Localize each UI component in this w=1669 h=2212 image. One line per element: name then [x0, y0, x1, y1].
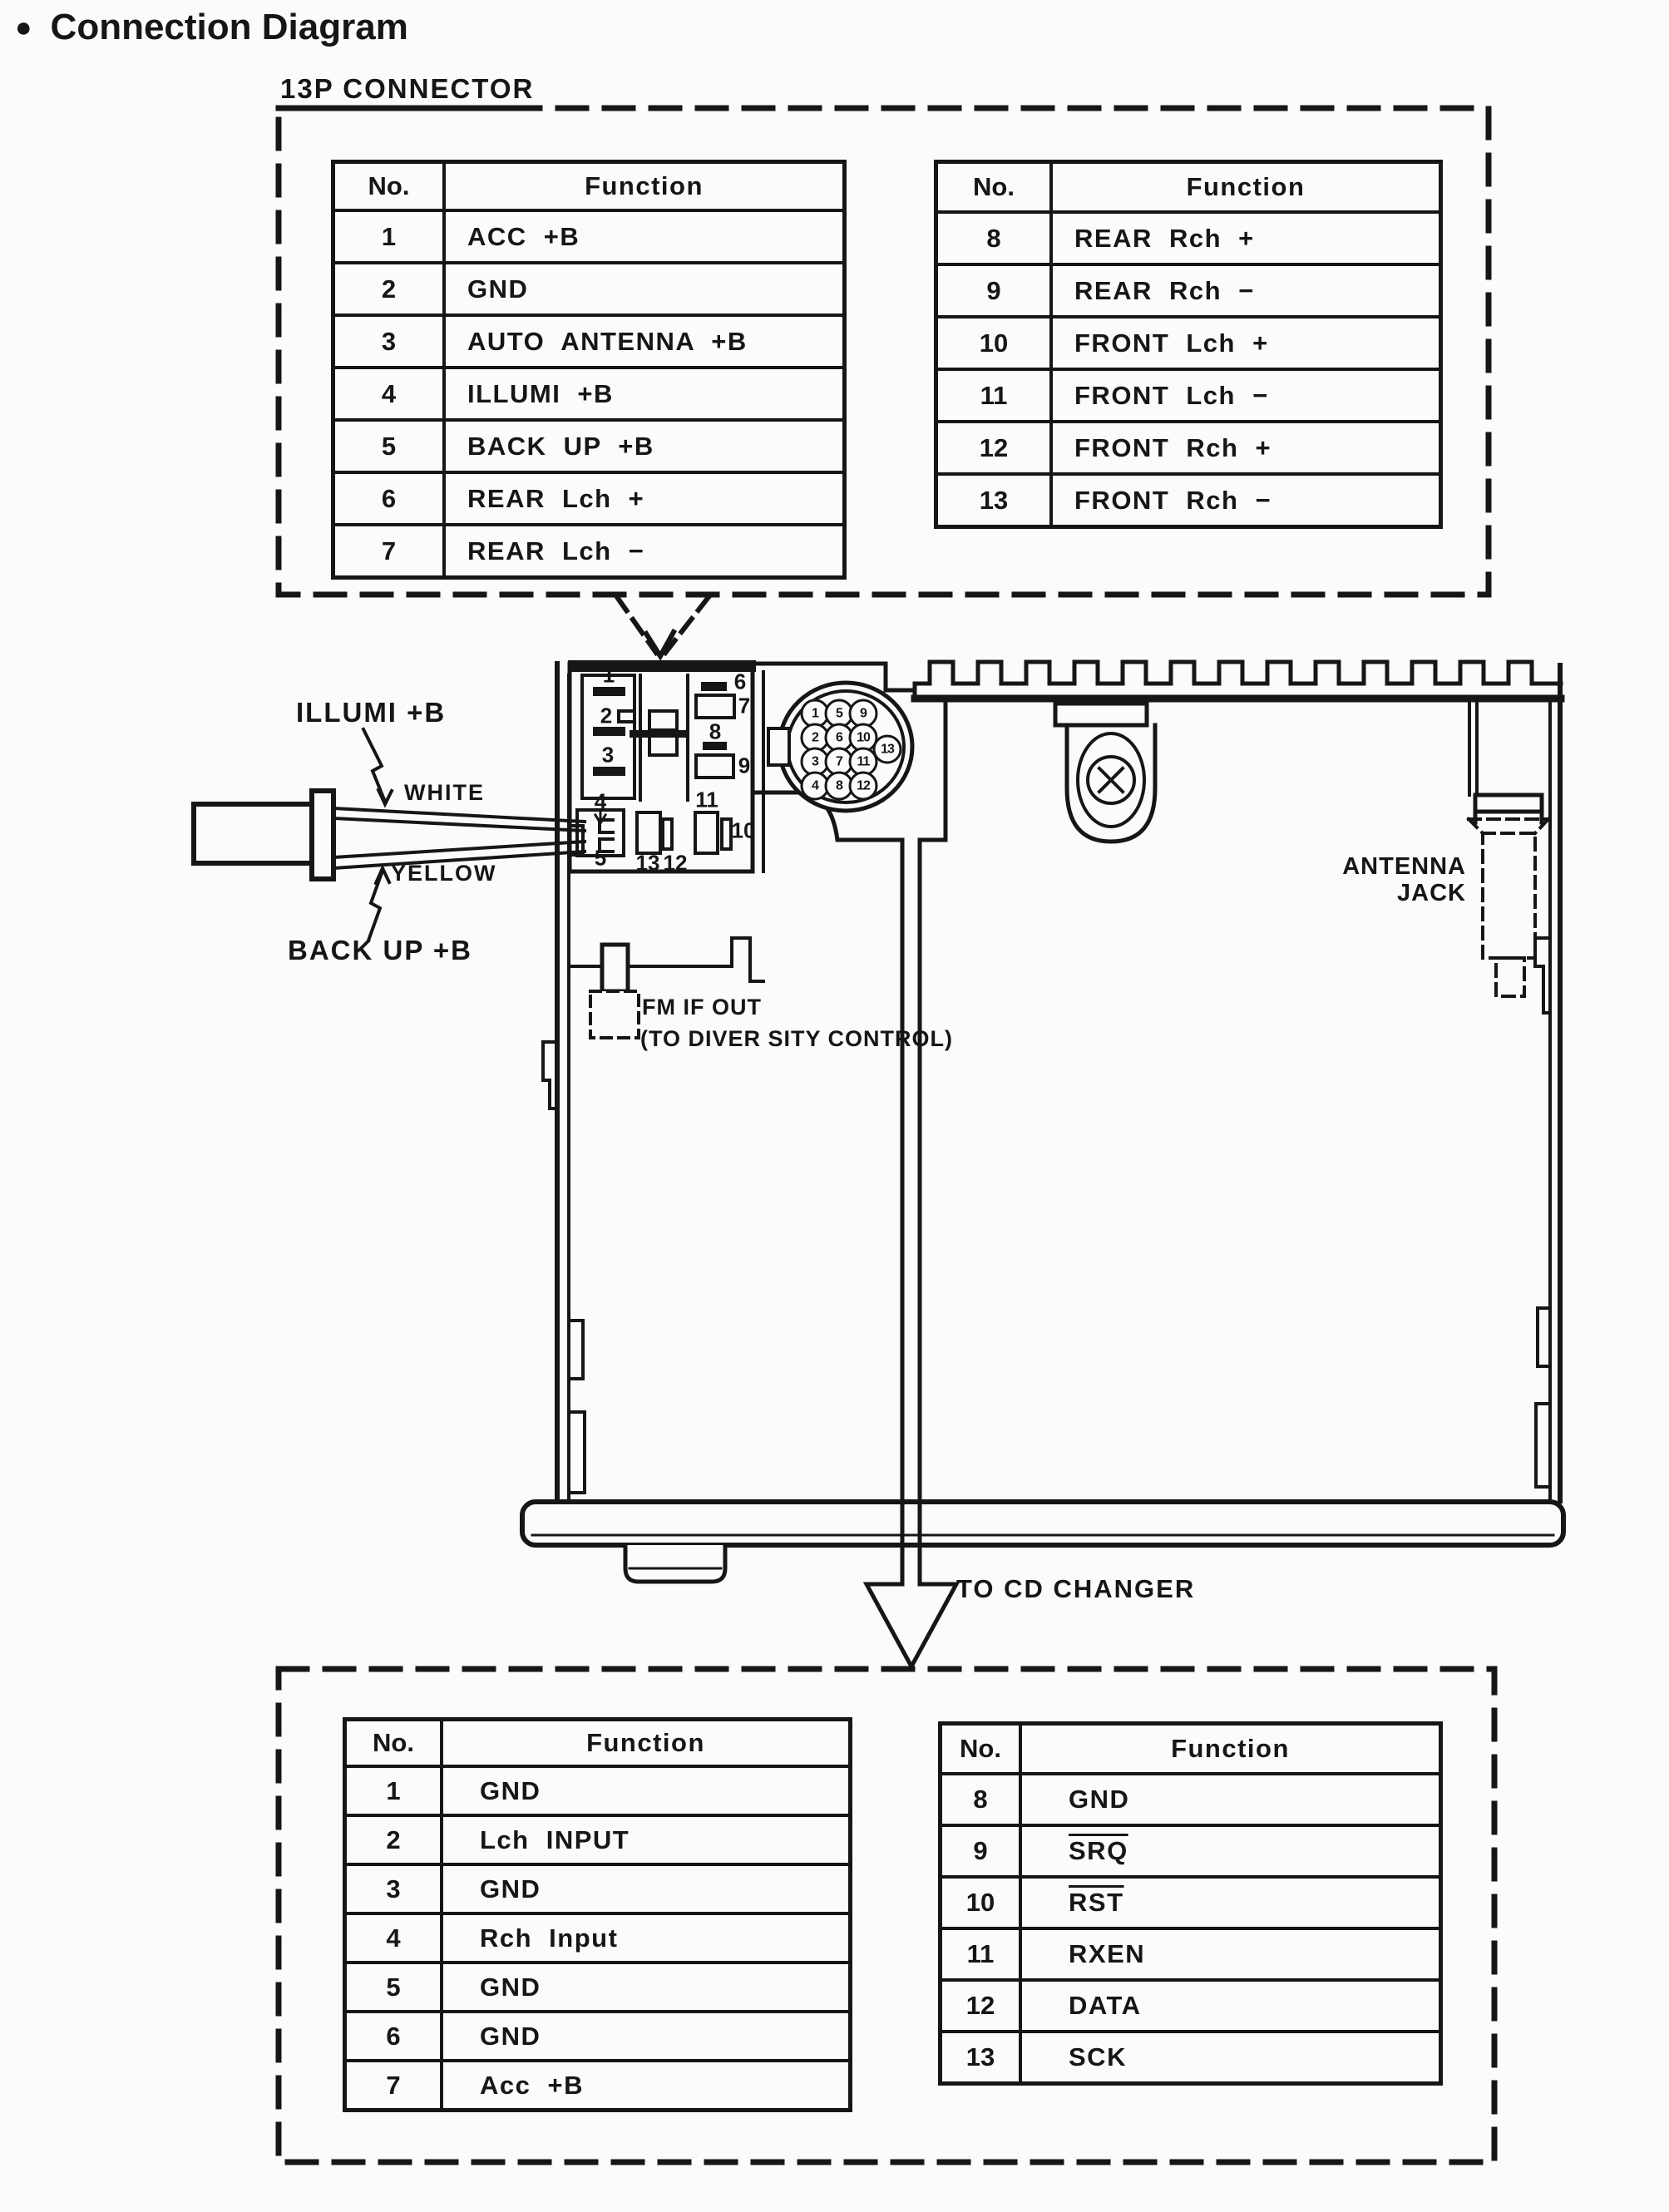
pin-number: 8: [942, 1775, 1022, 1824]
label-illumi-b: ILLUMI +B: [296, 697, 446, 728]
pin-function: BACK UP +B: [446, 422, 842, 471]
page-title: ● Connection Diagram: [15, 7, 408, 48]
table-row: 8 GND: [942, 1772, 1439, 1824]
label-white-wire: WHITE: [404, 780, 485, 806]
pin-function: RXEN: [1022, 1930, 1439, 1978]
label-to-cd-changer: TO CD CHANGER: [956, 1574, 1195, 1604]
table-row: 4 Rch Input: [347, 1912, 848, 1961]
table-row: 3 GND: [347, 1863, 848, 1912]
pin-function: GND: [443, 1964, 848, 2010]
connector-pin-number: 5: [595, 846, 606, 871]
table-row: 11 FRONT Lch −: [938, 368, 1439, 420]
pin-table-13p-right: No. Function 8 REAR Rch + 9 REAR Rch − 1…: [934, 160, 1443, 529]
pin-function: Lch INPUT: [443, 1817, 848, 1863]
table-row: 10 RST: [942, 1875, 1439, 1927]
column-header-function: Function: [443, 1721, 848, 1765]
pin-number: 4: [335, 369, 446, 418]
pin-number: 6: [347, 2013, 443, 2059]
table-row: 13 FRONT Rch −: [938, 472, 1439, 525]
table-row: 1 ACC +B: [335, 209, 842, 261]
pin-function: GND: [443, 1866, 848, 1912]
table-header: No. Function: [938, 164, 1439, 210]
connector-pin-number: 9: [738, 753, 750, 779]
pin-number: 5: [335, 422, 446, 471]
pin-function: REAR Lch +: [446, 474, 842, 523]
pin-number: 11: [938, 371, 1053, 420]
connector-pin-number: 11: [695, 788, 718, 813]
antenna-jack-outline: [1469, 819, 1548, 996]
table-row: 12 FRONT Rch +: [938, 420, 1439, 472]
pin-number: 4: [347, 1915, 443, 1961]
pin-function: REAR Lch −: [446, 526, 842, 575]
connector-pin-number: 10: [732, 818, 756, 844]
pin-number: 2: [347, 1817, 443, 1863]
pin-function: FRONT Rch −: [1053, 476, 1439, 525]
pin-function: Rch Input: [443, 1915, 848, 1961]
wires: [333, 808, 585, 868]
pin-number: 11: [942, 1930, 1022, 1978]
pin-function: ILLUMI +B: [446, 369, 842, 418]
pin-number: 12: [942, 1982, 1022, 2030]
pin-function: SRQ: [1022, 1827, 1439, 1875]
label-antenna: ANTENNA: [1331, 853, 1466, 881]
label-diversity-control: (TO DIVER SITY CONTROL): [640, 1026, 953, 1052]
pin-number: 12: [938, 423, 1053, 472]
pin-number: 10: [938, 318, 1053, 368]
column-header-no: No.: [335, 164, 446, 209]
pin-function: ACC +B: [446, 212, 842, 261]
table-row: 1 GND: [347, 1765, 848, 1814]
table-row: 10 FRONT Lch +: [938, 315, 1439, 368]
label-yellow-wire: YELLOW: [391, 861, 497, 886]
label-antenna-jack: JACK: [1331, 880, 1466, 907]
pin-function: RST: [1022, 1879, 1439, 1927]
pin-number: 5: [347, 1964, 443, 2010]
table-row: 5 GND: [347, 1961, 848, 2010]
pin-function: Acc +B: [443, 2062, 848, 2108]
column-header-function: Function: [1022, 1726, 1439, 1772]
pin-number: 10: [942, 1879, 1022, 1927]
pin-number: 13: [942, 2033, 1022, 2081]
column-header-no: No.: [347, 1721, 443, 1765]
pin-function: GND: [443, 2013, 848, 2059]
table-row: 11 RXEN: [942, 1927, 1439, 1978]
pin-number: 7: [335, 526, 446, 575]
pin-number: 9: [942, 1827, 1022, 1875]
table-row: 7 REAR Lch −: [335, 523, 842, 575]
column-header-no: No.: [938, 164, 1053, 210]
table-row: 13 SCK: [942, 2030, 1439, 2081]
table-header: No. Function: [335, 164, 842, 209]
table-row: 12 DATA: [942, 1978, 1439, 2030]
table-row: 6 GND: [347, 2010, 848, 2059]
table-row: 5 BACK UP +B: [335, 418, 842, 471]
table-row: 8 REAR Rch +: [938, 210, 1439, 263]
bullet-icon: ●: [15, 13, 32, 42]
connector-pin-number: 8: [709, 719, 721, 745]
pin-number: 13: [938, 476, 1053, 525]
column-header-function: Function: [446, 164, 842, 209]
pin-number: 2: [335, 264, 446, 314]
pin-function: FRONT Lch +: [1053, 318, 1439, 368]
pin-function: GND: [446, 264, 842, 314]
connector-pin-number: 4: [595, 789, 606, 815]
pin-function: AUTO ANTENNA +B: [446, 317, 842, 366]
pin-function: GND: [443, 1768, 848, 1814]
label-fm-if-out: FM IF OUT: [642, 995, 762, 1020]
table-row: 2 GND: [335, 261, 842, 314]
connection-diagram-page: ● Connection Diagram 13P CONNECTOR ILLUM…: [0, 0, 1669, 2212]
connector-pin-number: 3: [602, 743, 614, 768]
table-row: 3 AUTO ANTENNA +B: [335, 314, 842, 366]
pin-number: 6: [335, 474, 446, 523]
column-header-no: No.: [942, 1726, 1022, 1772]
pin-function: REAR Rch −: [1053, 266, 1439, 315]
screw-x-icon: [1099, 768, 1123, 792]
pin-function: GND: [1022, 1775, 1439, 1824]
table-row: 4 ILLUMI +B: [335, 366, 842, 418]
page-title-text: Connection Diagram: [51, 7, 408, 48]
connector-pin-number: 2: [600, 704, 612, 729]
connector-pin-number: 12: [664, 851, 688, 876]
pin-number: 1: [335, 212, 446, 261]
pin-table-13p-left: No. Function 1 ACC +B 2 GND 3 AUTO ANTEN…: [331, 160, 847, 580]
pin-number: 1: [347, 1768, 443, 1814]
din-pin: 12: [849, 772, 878, 801]
pin-table-cd-right: No. Function 8 GND 9 SRQ 10 RST: [938, 1721, 1443, 2086]
table-row: 9 SRQ: [942, 1824, 1439, 1875]
pin-table-cd-left: No. Function 1 GND 2 Lch INPUT 3 GND: [343, 1717, 852, 2112]
label-back-up-b: BACK UP +B: [288, 935, 472, 966]
table-header: No. Function: [942, 1726, 1439, 1772]
pin-number: 3: [335, 317, 446, 366]
table-row: 9 REAR Rch −: [938, 263, 1439, 315]
connector-pin-number: 6: [734, 669, 746, 695]
pin-function: SCK: [1022, 2033, 1439, 2081]
column-header-function: Function: [1053, 164, 1439, 210]
pin-number: 3: [347, 1866, 443, 1912]
pin-function: DATA: [1022, 1982, 1439, 2030]
pin-number: 7: [347, 2062, 443, 2108]
table-row: 2 Lch INPUT: [347, 1814, 848, 1863]
pin-function: FRONT Rch +: [1053, 423, 1439, 472]
pin-function: FRONT Lch −: [1053, 371, 1439, 420]
connector-pin-number: 7: [738, 694, 750, 719]
table-row: 6 REAR Lch +: [335, 471, 842, 523]
table-header: No. Function: [347, 1721, 848, 1765]
pin-function: REAR Rch +: [1053, 214, 1439, 263]
table-row: 7 Acc +B: [347, 2059, 848, 2108]
pin-number: 9: [938, 266, 1053, 315]
connector-pin-number: 1: [603, 663, 615, 689]
pin-number: 8: [938, 214, 1053, 263]
connector-pin-number: 13: [636, 851, 660, 876]
label-13p-connector: 13P CONNECTOR: [280, 73, 534, 105]
